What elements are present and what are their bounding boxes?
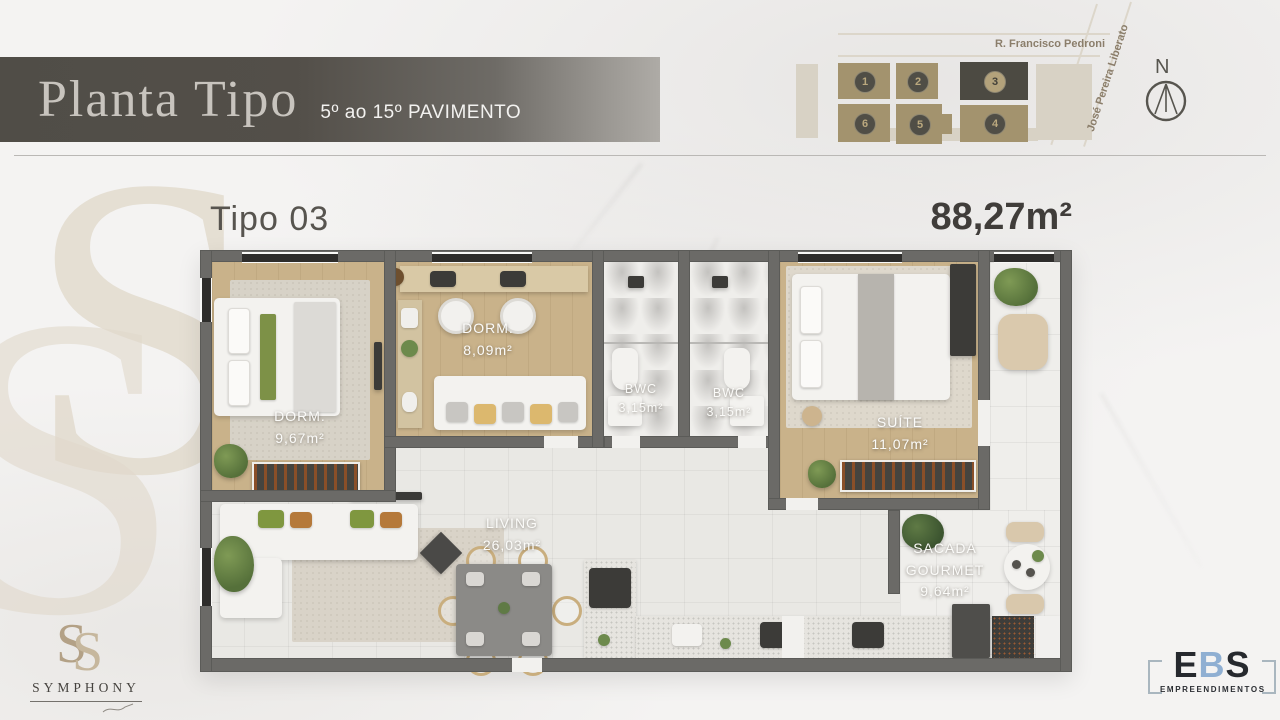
room-name: LIVING xyxy=(462,513,562,535)
plan-total-area: 88,27m² xyxy=(822,196,1072,239)
shelf-vase xyxy=(402,392,417,412)
sacada-chair xyxy=(1006,594,1044,614)
compass-north-label: N xyxy=(1155,56,1169,79)
map-unit-1-number: 1 xyxy=(854,71,876,93)
wall-bottom xyxy=(200,658,1072,672)
room-label-dorm2: DORM. 8,09m² xyxy=(438,318,538,361)
sofa-pillow xyxy=(474,404,496,424)
dorm1-plant xyxy=(214,444,248,478)
bed-pillow xyxy=(228,308,250,354)
bed-blanket xyxy=(294,302,336,412)
unit-number: 5 xyxy=(917,119,923,131)
room-area: 26,03m² xyxy=(462,535,562,557)
unit-number: 3 xyxy=(992,76,998,88)
counter-tv-monitor xyxy=(852,622,884,648)
header-banner: Planta Tipo 5º ao 15º PAVIMENTO xyxy=(0,57,660,142)
laptop-icon xyxy=(500,271,526,287)
bwc1-shower-head xyxy=(628,276,644,288)
kitchen-sink xyxy=(672,624,702,646)
sacada-chair xyxy=(1006,522,1044,542)
room-area: 11,07m² xyxy=(850,434,950,456)
bed-pillow xyxy=(228,360,250,406)
bwc1-glass-line xyxy=(604,342,678,344)
room-area: 9,64m² xyxy=(898,581,992,603)
kitchen-passage-gap xyxy=(782,616,804,658)
suite-stool xyxy=(802,406,822,426)
kitchen-island xyxy=(584,560,636,658)
door-suite xyxy=(786,498,818,510)
page-subtitle: 5º ao 15º PAVIMENTO xyxy=(320,102,521,124)
sofa-pillow xyxy=(558,402,578,422)
header-divider xyxy=(14,155,1266,156)
wall-suite-balcony xyxy=(978,250,990,510)
cooktop xyxy=(589,568,631,608)
placemat xyxy=(522,572,540,586)
monogram-s: S xyxy=(72,624,103,680)
room-name: BWC xyxy=(689,384,769,403)
map-unit-6-number: 6 xyxy=(854,113,876,135)
counter-greens xyxy=(720,638,731,649)
room-name: SACADA GOURMET xyxy=(898,538,992,581)
symphony-underline xyxy=(30,701,142,702)
room-label-bwc2: BWC 3,15m² xyxy=(689,384,769,423)
suite-wardrobe xyxy=(840,460,976,492)
unit-number: 2 xyxy=(915,76,921,88)
sacada-grill xyxy=(992,616,1034,658)
unit-number: 4 xyxy=(992,118,998,130)
dorm1-wardrobe xyxy=(252,462,360,492)
living-plant xyxy=(214,536,254,592)
balcony-lounge-chair xyxy=(998,314,1048,370)
sofa-pillow-green xyxy=(258,510,284,528)
room-label-sacada: SACADA GOURMET 9,64m² xyxy=(898,538,992,603)
room-label-dorm1: DORM. 9,67m² xyxy=(250,406,350,449)
dorm2-sofa-bed xyxy=(434,376,586,430)
dorm1-tv xyxy=(374,342,382,390)
compass-icon xyxy=(1143,78,1189,124)
symphony-logo: S S SYMPHONY xyxy=(20,616,152,720)
balcony-plant xyxy=(994,268,1038,306)
page-title: Planta Tipo xyxy=(38,70,298,129)
room-label-living: LIVING 26,03m² xyxy=(462,513,562,556)
map-unit-4-number: 4 xyxy=(984,113,1006,135)
window-living-left xyxy=(200,548,212,606)
unit-number: 6 xyxy=(862,118,868,130)
room-name: DORM. xyxy=(250,406,350,428)
map-unit-5-step xyxy=(942,114,952,134)
room-name: SUÍTE xyxy=(850,412,950,434)
placemat xyxy=(466,632,484,646)
window-balcony xyxy=(994,252,1054,263)
kitchen-counter xyxy=(636,616,990,658)
symphony-monogram-icon: S S xyxy=(20,616,152,678)
island-greens xyxy=(598,634,610,646)
sofa-pillow-green xyxy=(350,510,374,528)
table-plate xyxy=(1026,568,1035,577)
street-name-horizontal: R. Francisco Pedroni xyxy=(960,38,1105,50)
symphony-flourish-icon xyxy=(101,703,135,715)
room-area: 3,15m² xyxy=(689,403,769,422)
room-area: 3,15m² xyxy=(601,399,681,418)
placemat xyxy=(522,632,540,646)
door-bwc1 xyxy=(612,436,640,448)
room-name: DORM. xyxy=(438,318,538,340)
sofa-pillow-rust xyxy=(380,512,402,528)
kitchen-fridge xyxy=(952,604,990,658)
bed-pillow xyxy=(800,340,822,388)
ebs-letter-e: E xyxy=(1173,644,1198,685)
dorm1-bed xyxy=(214,298,340,416)
dorm2-desk xyxy=(400,266,588,292)
laptop-icon xyxy=(430,271,456,287)
sofa-pillow xyxy=(502,402,524,422)
floor-plan: DORM. 9,67m² DORM. 8,09m² BWC 3,15m² BWC… xyxy=(200,250,1072,672)
suite-tv-cabinet xyxy=(950,264,976,356)
map-unit-2-number: 2 xyxy=(907,71,929,93)
ebs-letter-s: S xyxy=(1226,644,1251,685)
placemat xyxy=(466,572,484,586)
table-plate xyxy=(1012,560,1021,569)
ebs-logo: EBS EMPREENDIMENTOS xyxy=(1156,646,1268,694)
sofa-pillow-rust xyxy=(290,512,312,528)
table-plant xyxy=(1032,550,1044,562)
sacada-round-table xyxy=(1004,544,1050,590)
map-block-bg xyxy=(1036,64,1092,140)
wall-right xyxy=(1060,250,1072,672)
ebs-subtitle: EMPREENDIMENTOS xyxy=(1160,685,1266,694)
planta-tipo-slide: S S Planta Tipo 5º ao 15º PAVIMENTO R. F… xyxy=(0,0,1280,720)
wall-bwc2-suite xyxy=(768,250,780,510)
plan-type-label: Tipo 03 xyxy=(210,200,329,239)
window-dorm2 xyxy=(432,252,532,263)
sacada-counter xyxy=(1036,616,1060,658)
map-unit-3-number: 3 xyxy=(984,71,1006,93)
ebs-letters: EBS xyxy=(1156,646,1268,684)
marble-vein xyxy=(1100,393,1202,567)
suite-plant xyxy=(808,460,836,488)
bed-pillow xyxy=(800,286,822,334)
sofa-pillow xyxy=(446,402,468,422)
map-unit-5-number: 5 xyxy=(909,114,931,136)
room-name: BWC xyxy=(601,380,681,399)
bwc2-glass-line xyxy=(690,342,768,344)
window-dorm1-left xyxy=(200,278,212,322)
table-centerpiece xyxy=(498,602,510,614)
bed-runner-gray xyxy=(858,274,894,400)
shelf-books xyxy=(401,308,418,328)
ebs-bracket-left xyxy=(1148,660,1162,694)
bed-runner-green xyxy=(260,314,276,400)
ebs-bracket-right xyxy=(1262,660,1276,694)
shelf-plant xyxy=(401,340,418,357)
door-suite-balcony xyxy=(978,400,990,446)
room-area: 8,09m² xyxy=(438,340,538,362)
dining-chair xyxy=(552,596,582,626)
door-bwc2 xyxy=(738,436,766,448)
dorm2-shelf xyxy=(398,300,422,428)
room-area: 9,67m² xyxy=(250,428,350,450)
window-dorm1 xyxy=(242,252,338,263)
wall-dorm1-bottom xyxy=(200,490,396,502)
door-dorm2 xyxy=(544,436,578,448)
unit-number: 1 xyxy=(862,76,868,88)
window-suite xyxy=(798,252,902,263)
sofa-pillow xyxy=(530,404,552,424)
street-line-top xyxy=(838,33,1110,35)
map-block-bg xyxy=(796,64,818,138)
ebs-subtitle-row: EMPREENDIMENTOS xyxy=(1156,685,1268,694)
street-line-bottom xyxy=(838,55,1100,57)
wall-dorm1-dorm2 xyxy=(384,250,396,502)
ebs-letter-b: B xyxy=(1199,644,1226,685)
room-label-bwc1: BWC 3,15m² xyxy=(601,380,681,419)
suite-bed xyxy=(792,274,950,400)
door-entry xyxy=(512,658,542,672)
room-label-suite: SUÍTE 11,07m² xyxy=(850,412,950,455)
dining-table xyxy=(456,564,552,656)
bwc2-shower-head xyxy=(712,276,728,288)
